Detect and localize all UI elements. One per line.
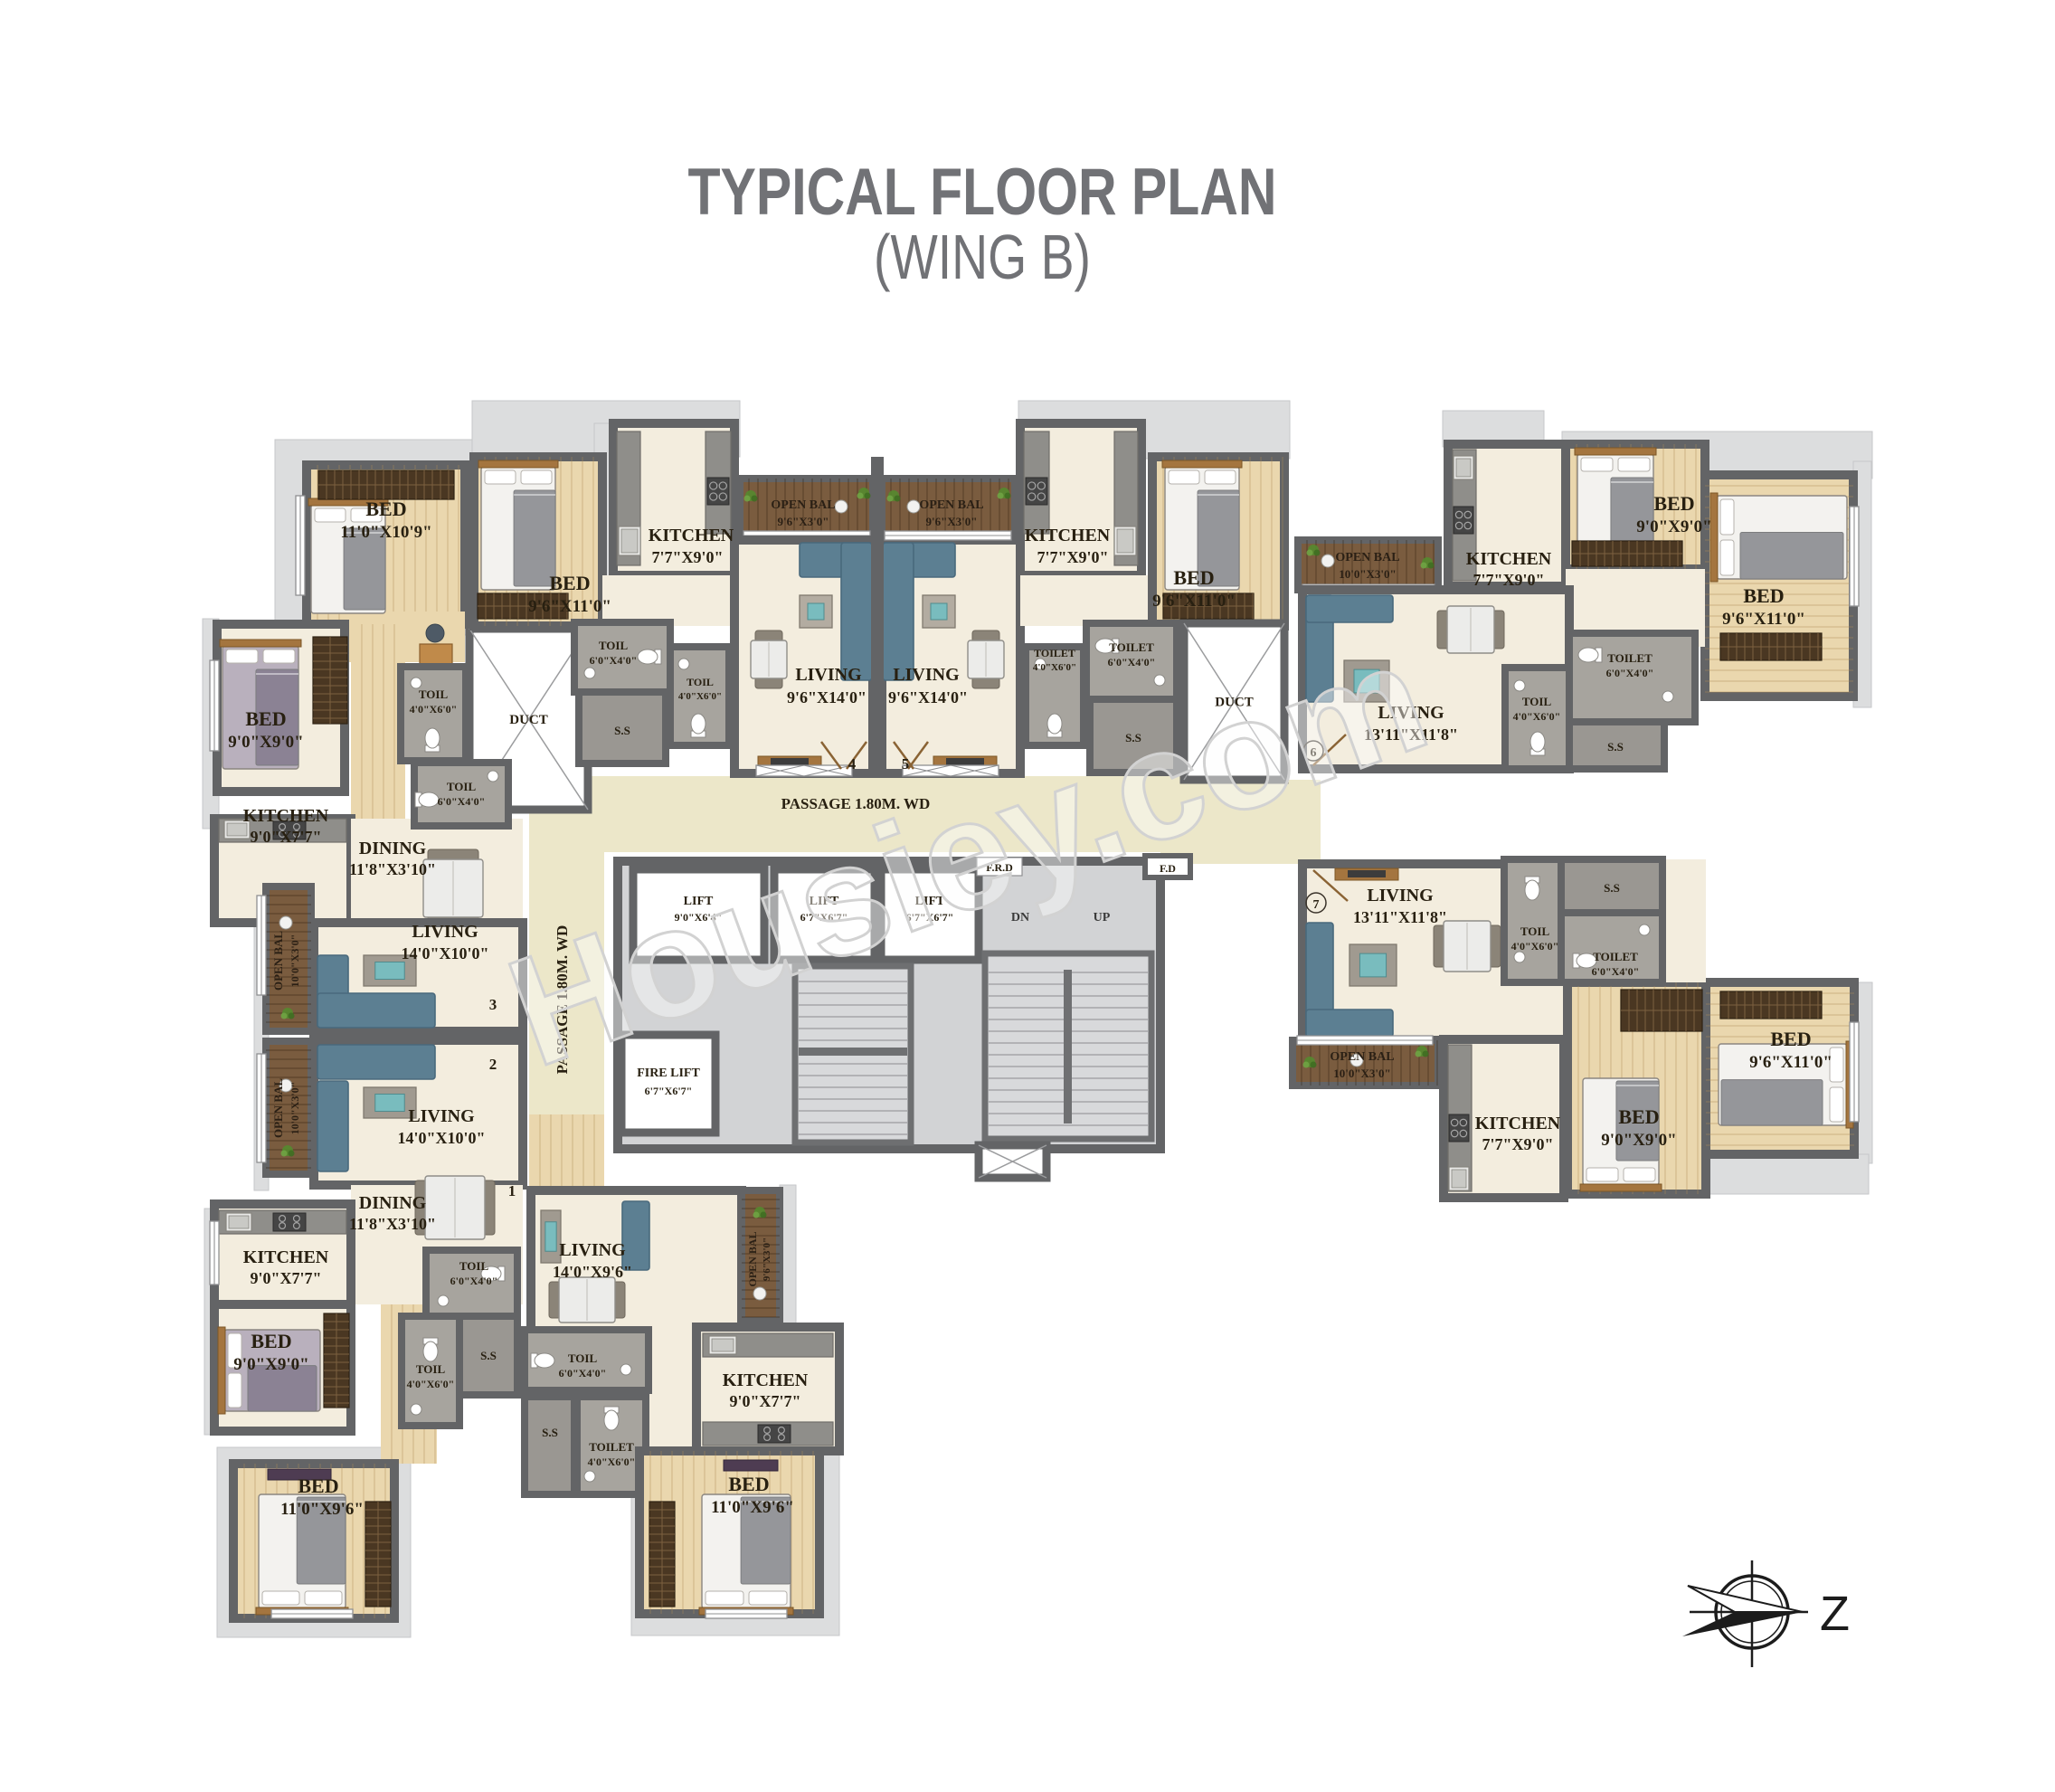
svg-text:TOILET: TOILET [589,1440,634,1454]
svg-text:14'0"X9'6": 14'0"X9'6" [553,1263,632,1281]
svg-text:LIVING: LIVING [1367,886,1434,905]
svg-text:BED: BED [1653,492,1694,515]
svg-text:9'6"X3'0": 9'6"X3'0" [925,515,977,528]
svg-text:10'0"X3'0": 10'0"X3'0" [289,1082,301,1135]
svg-text:9'6"X14'0": 9'6"X14'0" [888,688,968,706]
svg-text:4'0"X6'0": 4'0"X6'0" [1511,940,1559,953]
svg-text:FIRE LIFT: FIRE LIFT [637,1067,700,1080]
svg-text:9'6"X3'0": 9'6"X3'0" [762,1237,772,1281]
svg-text:6'0"X4'0": 6'0"X4'0" [450,1275,498,1287]
svg-text:14'0"X10'0": 14'0"X10'0" [402,944,489,962]
svg-text:10'0"X3'0": 10'0"X3'0" [289,934,301,988]
svg-text:BED: BED [549,572,590,594]
svg-text:11'8"X3'10": 11'8"X3'10" [349,860,436,878]
svg-text:6'0"X4'0": 6'0"X4'0" [1108,656,1156,668]
svg-text:9'0"X9'0": 9'0"X9'0" [1601,1131,1676,1150]
svg-text:KITCHEN: KITCHEN [1025,526,1111,545]
svg-text:BED: BED [365,498,406,520]
svg-text:BED: BED [251,1330,291,1352]
svg-text:Z: Z [1820,1587,1850,1641]
svg-text:BED: BED [1173,566,1214,589]
svg-text:TOILET: TOILET [1607,651,1653,665]
svg-text:7'7"X9'0": 7'7"X9'0" [1482,1135,1554,1153]
svg-text:DINING: DINING [359,839,427,858]
svg-text:3: 3 [489,996,497,1013]
svg-text:11'0"X10'9": 11'0"X10'9" [340,523,431,542]
svg-text:6'0"X4'0": 6'0"X4'0" [1592,965,1640,978]
svg-text:9'0"X9'0": 9'0"X9'0" [233,1355,308,1374]
svg-text:DUCT: DUCT [509,713,548,727]
svg-text:4'0"X6'0": 4'0"X6'0" [678,691,722,702]
svg-text:13'11"X11'8": 13'11"X11'8" [1353,908,1447,926]
svg-text:LIVING: LIVING [893,665,960,685]
svg-text:BED: BED [1770,1028,1811,1050]
svg-text:UP: UP [1094,911,1111,924]
svg-text:TOIL: TOIL [1522,695,1552,708]
svg-text:TYPICAL FLOOR PLAN: TYPICAL FLOOR PLAN [688,156,1277,229]
svg-text:OPEN BAL: OPEN BAL [746,1231,759,1286]
svg-text:S.S: S.S [1607,740,1624,754]
svg-text:BED: BED [245,707,286,730]
svg-text:LIVING: LIVING [408,1106,475,1126]
svg-text:TOILET: TOILET [1593,950,1638,963]
svg-text:BED: BED [1618,1105,1659,1128]
svg-text:S.S: S.S [480,1349,497,1362]
svg-text:9'6"X11'0": 9'6"X11'0" [1152,592,1236,611]
svg-text:11'0"X9'6": 11'0"X9'6" [711,1498,794,1517]
svg-text:9'0"X9'0": 9'0"X9'0" [228,733,303,752]
svg-text:10'0"X3'0": 10'0"X3'0" [1339,567,1397,581]
svg-text:5: 5 [902,755,910,773]
svg-text:7'7"X9'0": 7'7"X9'0" [652,548,724,566]
svg-text:(WING B): (WING B) [874,222,1091,292]
svg-text:TOILET: TOILET [1109,640,1154,654]
svg-text:KITCHEN: KITCHEN [243,806,329,826]
svg-text:11'0"X9'6": 11'0"X9'6" [280,1500,364,1519]
svg-text:4'0"X6'0": 4'0"X6'0" [407,1378,455,1390]
svg-text:9'0"X7'7": 9'0"X7'7" [730,1392,801,1410]
svg-text:KITCHEN: KITCHEN [1466,549,1552,569]
svg-text:TOILET: TOILET [1034,647,1075,659]
svg-text:OPEN BAL: OPEN BAL [1335,551,1399,564]
svg-text:OPEN BAL: OPEN BAL [271,1078,285,1138]
svg-text:4'0"X6'0": 4'0"X6'0" [1513,710,1561,723]
svg-text:1: 1 [508,1182,516,1199]
svg-text:KITCHEN: KITCHEN [649,526,734,545]
svg-text:BED: BED [1743,584,1784,607]
svg-text:6'0"X4'0": 6'0"X4'0" [590,654,638,667]
svg-text:9'0"X9'0": 9'0"X9'0" [1636,517,1711,536]
svg-text:7'7"X9'0": 7'7"X9'0" [1473,571,1545,589]
svg-text:TOIL: TOIL [419,687,449,701]
svg-text:KITCHEN: KITCHEN [1475,1114,1561,1133]
svg-text:9'6"X11'0": 9'6"X11'0" [1749,1053,1832,1072]
svg-text:2: 2 [489,1056,497,1073]
svg-text:LIVING: LIVING [559,1240,626,1260]
svg-text:TOIL: TOIL [1520,924,1550,938]
svg-text:OPEN BAL: OPEN BAL [1330,1050,1394,1064]
svg-text:BED: BED [298,1474,338,1497]
svg-text:BED: BED [728,1473,769,1495]
svg-text:TOIL: TOIL [416,1362,446,1376]
svg-text:TOIL: TOIL [599,639,629,652]
svg-text:S.S: S.S [614,724,630,737]
svg-text:4'0"X6'0": 4'0"X6'0" [410,703,458,716]
svg-text:9'0"X7'7": 9'0"X7'7" [251,828,322,846]
svg-text:4'0"X6'0": 4'0"X6'0" [1033,662,1076,673]
svg-text:6'7"X6'7": 6'7"X6'7" [645,1085,693,1097]
svg-text:9'0"X7'7": 9'0"X7'7" [251,1269,322,1287]
svg-text:4: 4 [848,755,857,773]
svg-text:10'0"X3'0": 10'0"X3'0" [1333,1067,1391,1080]
svg-text:7'7"X9'0": 7'7"X9'0" [1037,548,1109,566]
svg-text:14'0"X10'0": 14'0"X10'0" [398,1129,486,1147]
svg-text:9'6"X11'0": 9'6"X11'0" [1722,610,1805,629]
svg-text:TOIL: TOIL [687,676,714,688]
svg-text:OPEN BAL: OPEN BAL [271,931,285,991]
svg-text:6'0"X4'0": 6'0"X4'0" [559,1367,607,1380]
svg-text:KITCHEN: KITCHEN [243,1247,329,1267]
svg-text:S.S: S.S [1604,881,1620,895]
svg-text:LIVING: LIVING [795,665,862,685]
svg-text:9'6"X11'0": 9'6"X11'0" [528,597,611,616]
svg-text:KITCHEN: KITCHEN [723,1370,809,1390]
svg-text:9'6"X14'0": 9'6"X14'0" [787,688,867,706]
svg-text:9'6"X3'0": 9'6"X3'0" [777,515,829,528]
svg-text:LIVING: LIVING [412,922,478,942]
svg-text:OPEN BAL: OPEN BAL [771,498,835,512]
svg-text:6'0"X4'0": 6'0"X4'0" [438,795,486,808]
svg-text:4'0"X6'0": 4'0"X6'0" [588,1455,636,1468]
svg-text:S.S: S.S [542,1426,558,1439]
svg-text:DINING: DINING [359,1193,427,1213]
svg-text:OPEN BAL: OPEN BAL [919,498,983,512]
svg-text:TOIL: TOIL [568,1351,598,1365]
svg-text:TOIL: TOIL [447,780,477,793]
svg-text:6'0"X4'0": 6'0"X4'0" [1606,667,1654,679]
svg-text:7: 7 [1313,898,1320,912]
svg-text:11'8"X3'10": 11'8"X3'10" [349,1215,436,1233]
svg-text:TOIL: TOIL [459,1259,489,1273]
